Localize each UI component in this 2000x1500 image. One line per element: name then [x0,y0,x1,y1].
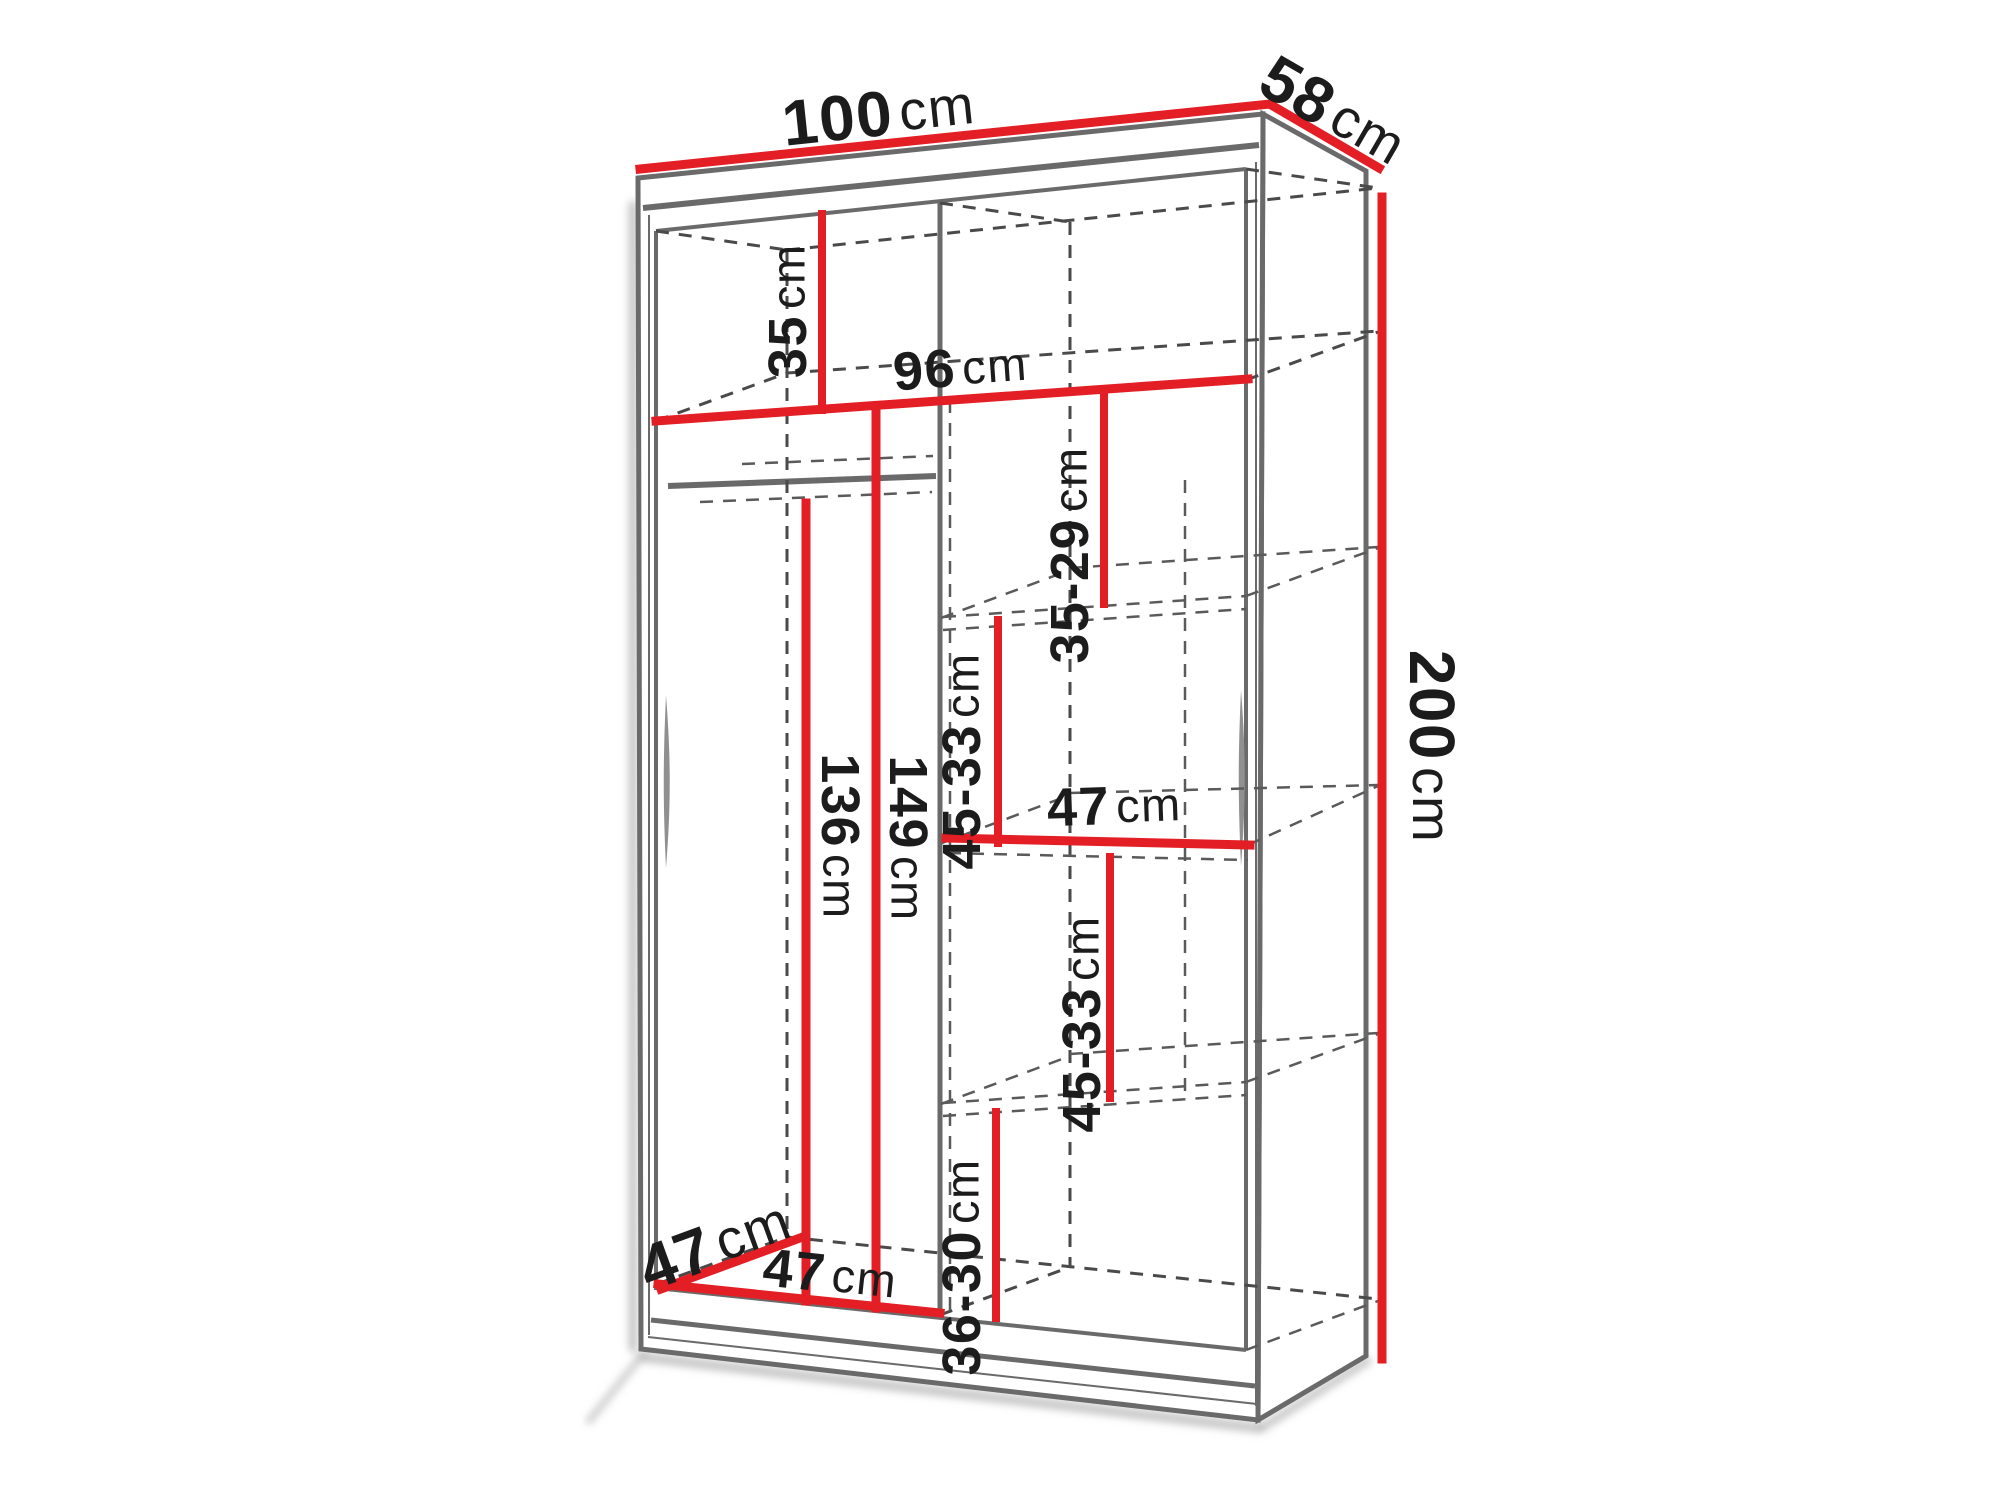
dim-value: 96 [891,338,958,402]
dim-value: 35-29 [1040,518,1100,664]
dim-left-rail-height-label: 136 cm [810,753,870,919]
dim-right-top-gap-label: 35-29 cm [1040,446,1100,663]
dim-unit: cm [1115,777,1182,832]
wardrobe-dimension-diagram: 100 cm 58 cm 200 cm 35 cm 96 cm 35-29 cm… [0,0,2000,1500]
dim-right-upper-gap-label: 45-33 cm [932,652,992,869]
dim-unit: cm [829,1248,900,1308]
dim-value: 45-33 [932,724,992,870]
dim-unit: cm [814,854,867,920]
dim-value: 100 [779,76,897,159]
dim-right-lower-gap-label: 45-33 cm [1052,915,1112,1132]
dim-value: 45-33 [1052,987,1112,1133]
dim-unit: cm [936,652,989,718]
dim-unit: cm [896,73,978,143]
dim-unit: cm [936,1158,989,1224]
dim-value: 36-30 [932,1230,992,1376]
dim-unit: cm [1044,446,1097,512]
diagram-canvas: 100 cm 58 cm 200 cm 35 cm 96 cm 35-29 cm… [0,0,2000,1500]
dim-value: 47 [1046,776,1111,838]
dim-unit: cm [1056,915,1109,981]
dim-unit: cm [882,856,935,922]
dim-value: 35 [758,315,818,378]
dim-value: 136 [810,753,870,848]
dim-unit: cm [960,337,1029,394]
dim-value: 47 [760,1237,829,1303]
side-panel [1258,114,1366,1420]
dim-value: 149 [878,755,938,850]
dim-right-bottom-gap-label: 36-30 cm [932,1158,992,1375]
dim-left-interior-height-label: 149 cm [878,755,938,921]
dim-value: 200 [1396,650,1468,761]
dim-unit: cm [1401,767,1463,843]
dim-overall-height-label: 200 cm [1396,650,1468,844]
dim-unit: cm [762,243,815,309]
